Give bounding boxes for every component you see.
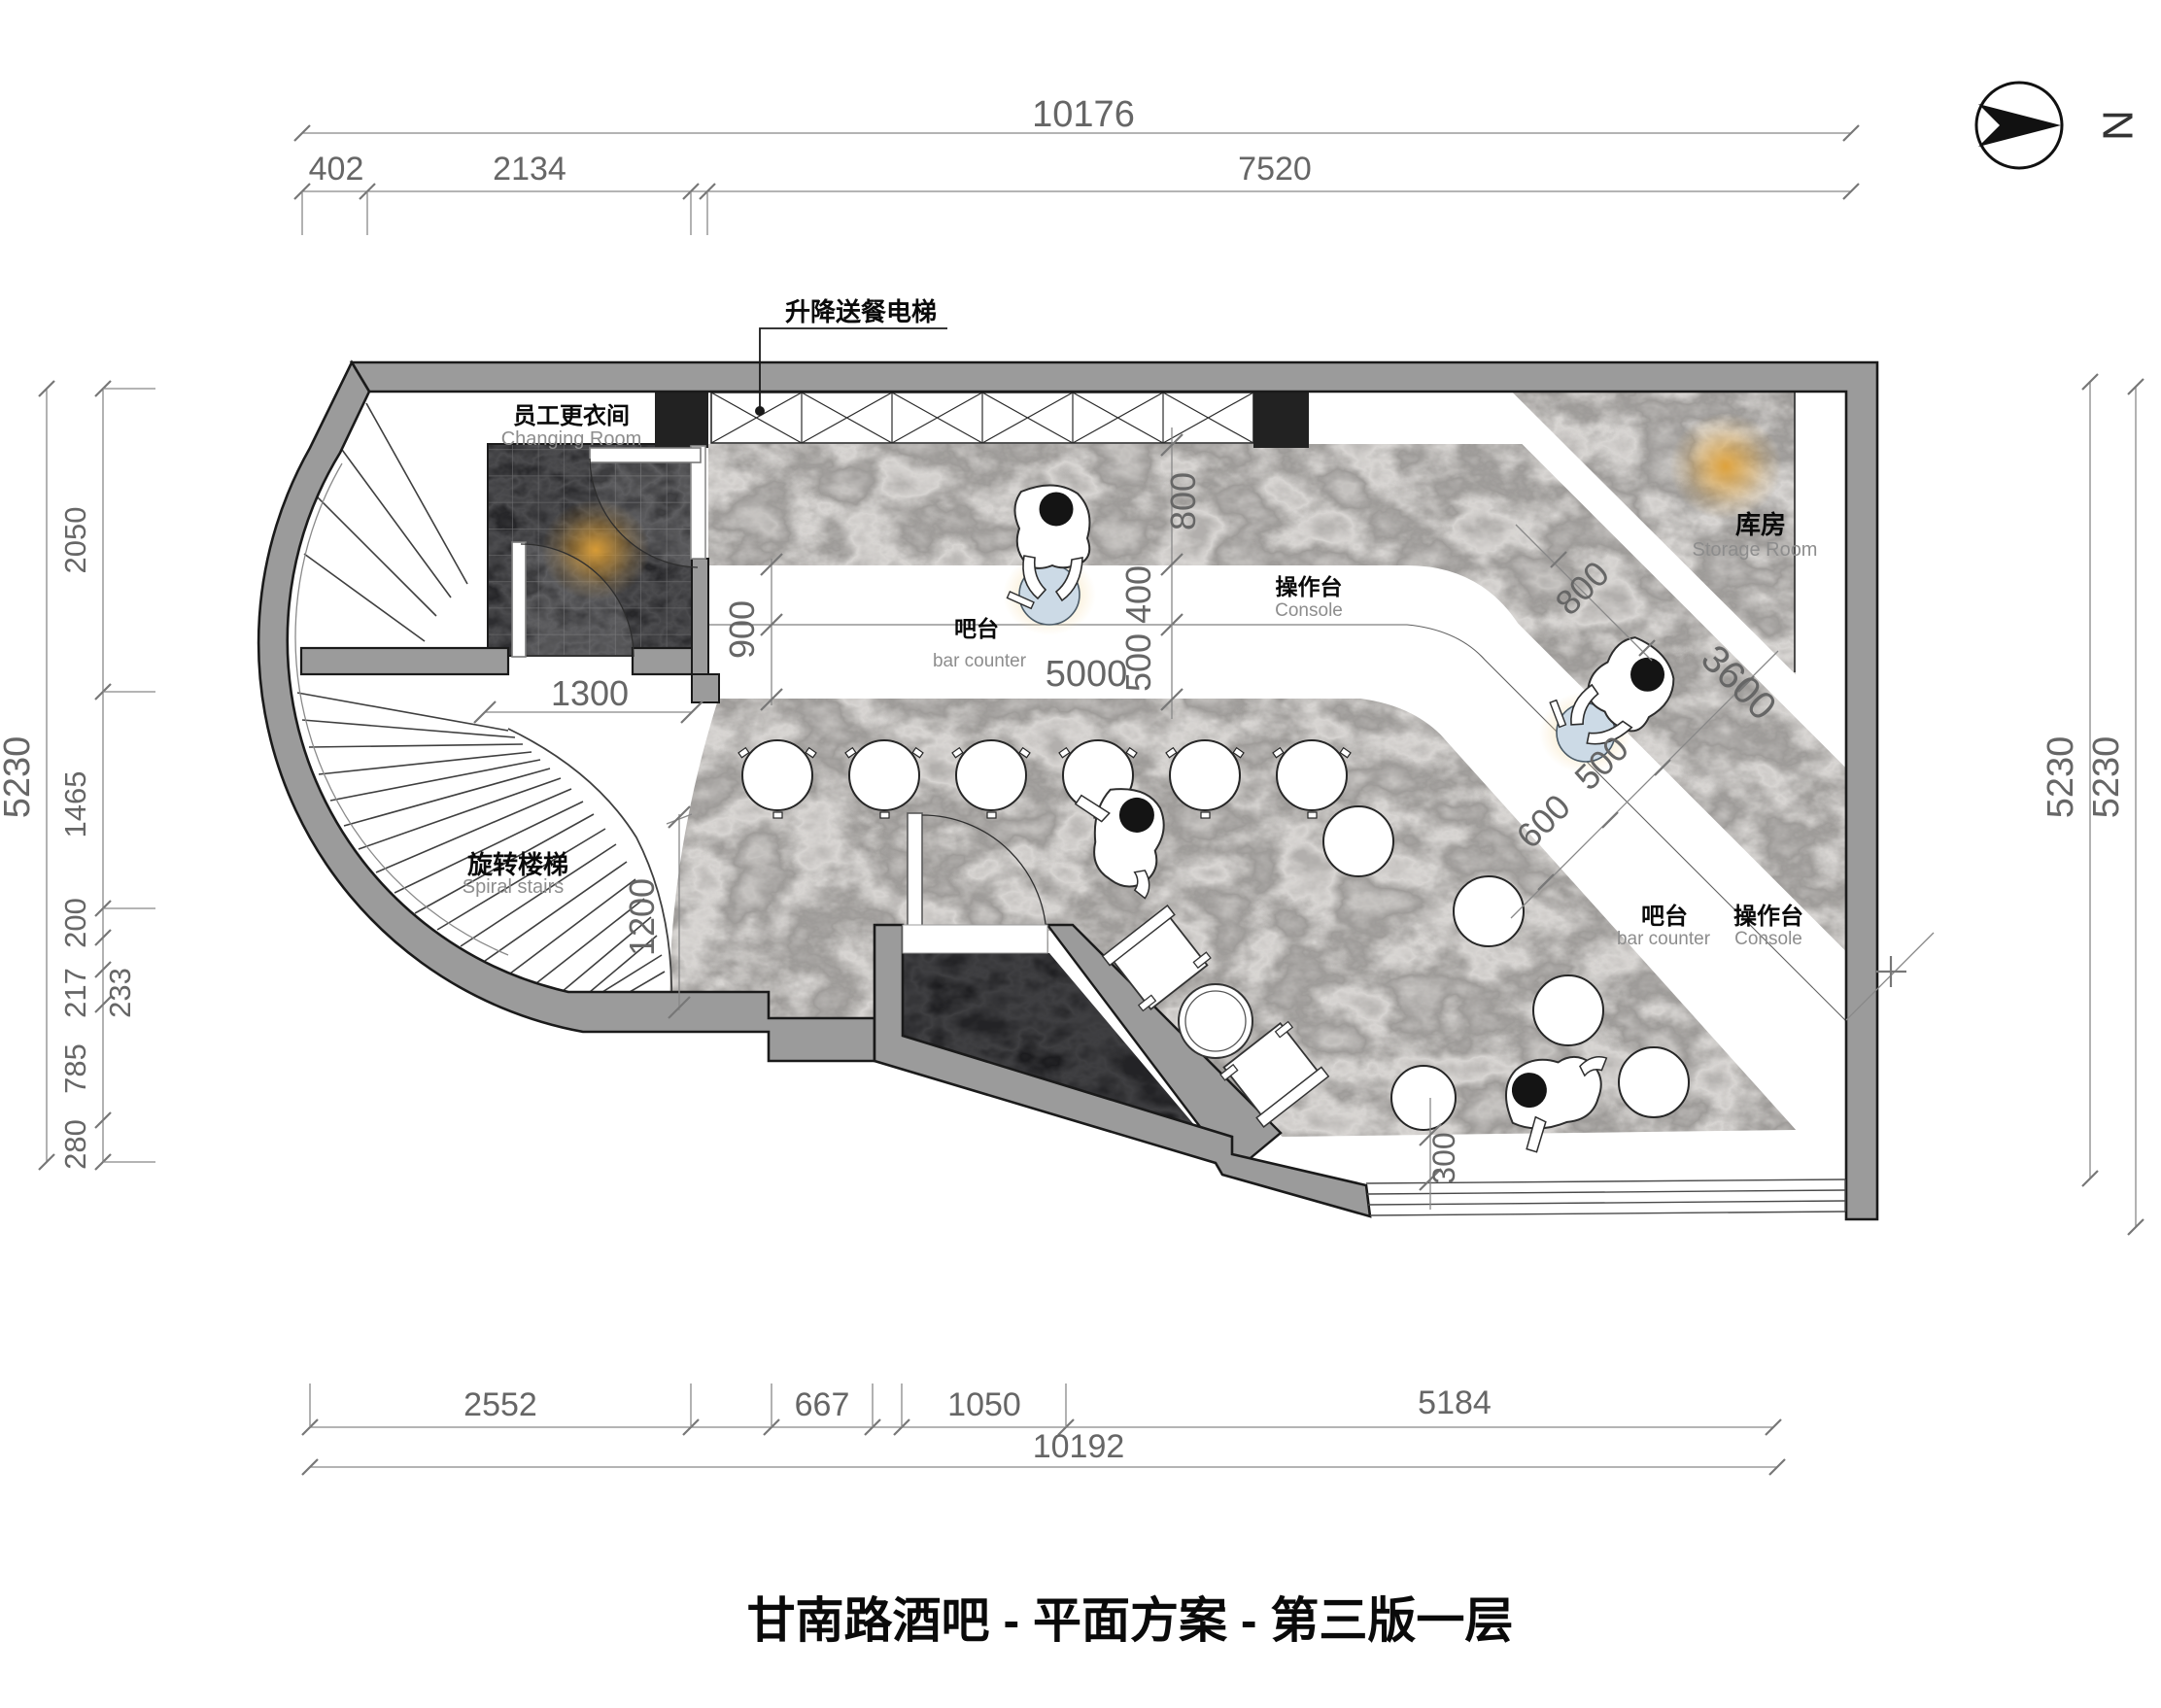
svg-text:吧台: 吧台: [1641, 903, 1688, 930]
svg-text:5230: 5230: [2041, 736, 2081, 819]
svg-text:1200: 1200: [622, 878, 662, 956]
svg-text:200: 200: [58, 898, 92, 948]
svg-text:300: 300: [1426, 1132, 1461, 1183]
svg-text:bar counter: bar counter: [1617, 929, 1711, 949]
svg-text:10176: 10176: [1032, 94, 1135, 135]
svg-text:667: 667: [795, 1386, 850, 1423]
svg-text:5184: 5184: [1418, 1384, 1492, 1421]
svg-text:1465: 1465: [58, 771, 92, 838]
svg-text:5230: 5230: [2086, 736, 2127, 819]
svg-text:2552: 2552: [463, 1386, 537, 1423]
svg-text:吧台: 吧台: [954, 616, 999, 641]
svg-text:800: 800: [1163, 472, 1203, 530]
svg-text:1050: 1050: [947, 1386, 1021, 1423]
svg-text:785: 785: [58, 1043, 92, 1094]
svg-text:5000: 5000: [1046, 654, 1128, 695]
svg-text:N: N: [2093, 110, 2141, 141]
svg-text:7520: 7520: [1238, 151, 1312, 188]
svg-text:1300: 1300: [551, 673, 629, 713]
svg-text:Storage Room: Storage Room: [1693, 539, 1818, 561]
svg-text:Spiral stairs: Spiral stairs: [463, 876, 564, 898]
svg-text:Changing Room: Changing Room: [501, 428, 642, 450]
svg-text:旋转楼梯: 旋转楼梯: [467, 850, 568, 879]
svg-text:员工更衣间: 员工更衣间: [513, 402, 630, 429]
svg-text:升降送餐电梯: 升降送餐电梯: [785, 297, 937, 326]
svg-text:操作台: 操作台: [1733, 903, 1803, 930]
svg-text:500: 500: [1118, 633, 1158, 692]
svg-text:217: 217: [58, 968, 92, 1018]
svg-text:2050: 2050: [58, 507, 92, 574]
svg-text:10192: 10192: [1033, 1428, 1125, 1465]
svg-text:280: 280: [58, 1119, 92, 1170]
svg-text:操作台: 操作台: [1276, 574, 1343, 599]
svg-text:甘南路酒吧 - 平面方案 - 第三版一层: 甘南路酒吧 - 平面方案 - 第三版一层: [747, 1593, 1514, 1648]
svg-text:2134: 2134: [493, 151, 566, 188]
svg-text:400: 400: [1118, 565, 1158, 624]
svg-text:Console: Console: [1734, 929, 1802, 949]
svg-text:Console: Console: [1275, 600, 1343, 621]
svg-text:900: 900: [722, 600, 762, 659]
svg-text:bar counter: bar counter: [933, 651, 1027, 671]
svg-text:5230: 5230: [0, 736, 38, 819]
svg-text:库房: 库房: [1735, 510, 1786, 539]
svg-text:402: 402: [309, 151, 364, 188]
svg-text:233: 233: [103, 968, 137, 1018]
